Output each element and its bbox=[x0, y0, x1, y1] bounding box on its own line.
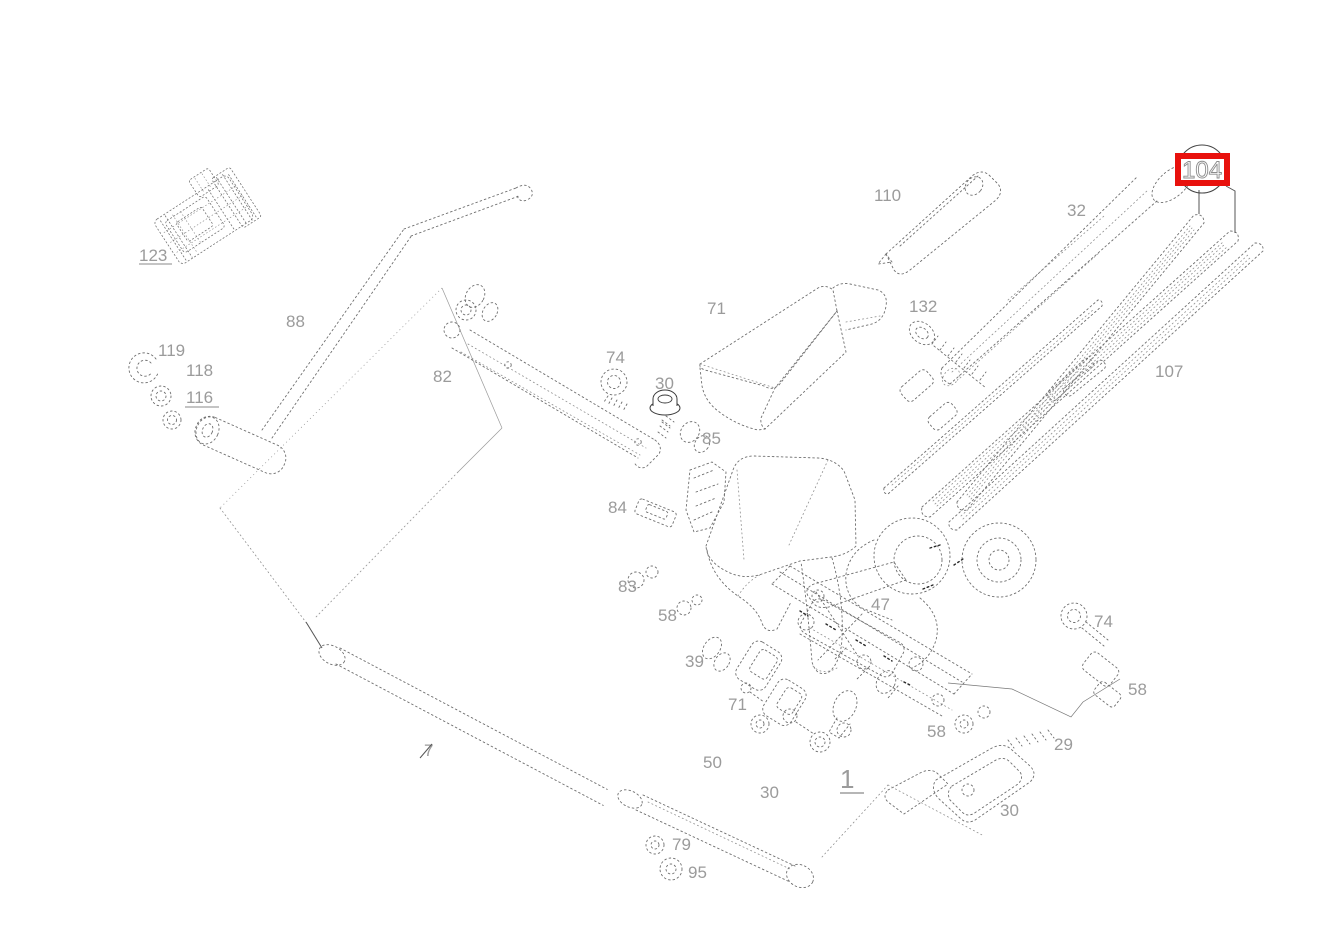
svg-text:7: 7 bbox=[424, 741, 433, 760]
svg-text:50: 50 bbox=[703, 753, 722, 772]
svg-text:118: 118 bbox=[186, 361, 213, 380]
svg-text:32: 32 bbox=[1067, 201, 1086, 220]
svg-text:95: 95 bbox=[688, 863, 707, 882]
svg-text:1: 1 bbox=[840, 764, 854, 794]
svg-text:119: 119 bbox=[158, 341, 185, 360]
svg-text:29: 29 bbox=[1054, 735, 1073, 754]
svg-text:84: 84 bbox=[608, 498, 627, 517]
svg-text:58: 58 bbox=[927, 722, 946, 741]
svg-text:74: 74 bbox=[606, 348, 625, 367]
svg-text:104: 104 bbox=[1182, 157, 1222, 184]
svg-text:30: 30 bbox=[1000, 801, 1019, 820]
svg-text:30: 30 bbox=[760, 783, 779, 802]
svg-text:58: 58 bbox=[1128, 680, 1147, 699]
svg-text:58: 58 bbox=[658, 606, 677, 625]
svg-text:71: 71 bbox=[728, 695, 747, 714]
svg-text:74: 74 bbox=[1094, 612, 1113, 631]
svg-text:107: 107 bbox=[1155, 362, 1183, 381]
svg-text:123: 123 bbox=[139, 246, 167, 265]
svg-text:116: 116 bbox=[186, 388, 213, 407]
svg-text:83: 83 bbox=[618, 577, 637, 596]
svg-text:132: 132 bbox=[909, 297, 937, 316]
svg-text:39: 39 bbox=[685, 652, 704, 671]
svg-text:85: 85 bbox=[702, 429, 721, 448]
svg-text:82: 82 bbox=[433, 367, 452, 386]
svg-text:71: 71 bbox=[707, 299, 726, 318]
svg-text:47: 47 bbox=[871, 595, 890, 614]
svg-text:88: 88 bbox=[286, 312, 305, 331]
svg-text:79: 79 bbox=[672, 835, 691, 854]
svg-text:110: 110 bbox=[874, 186, 901, 205]
